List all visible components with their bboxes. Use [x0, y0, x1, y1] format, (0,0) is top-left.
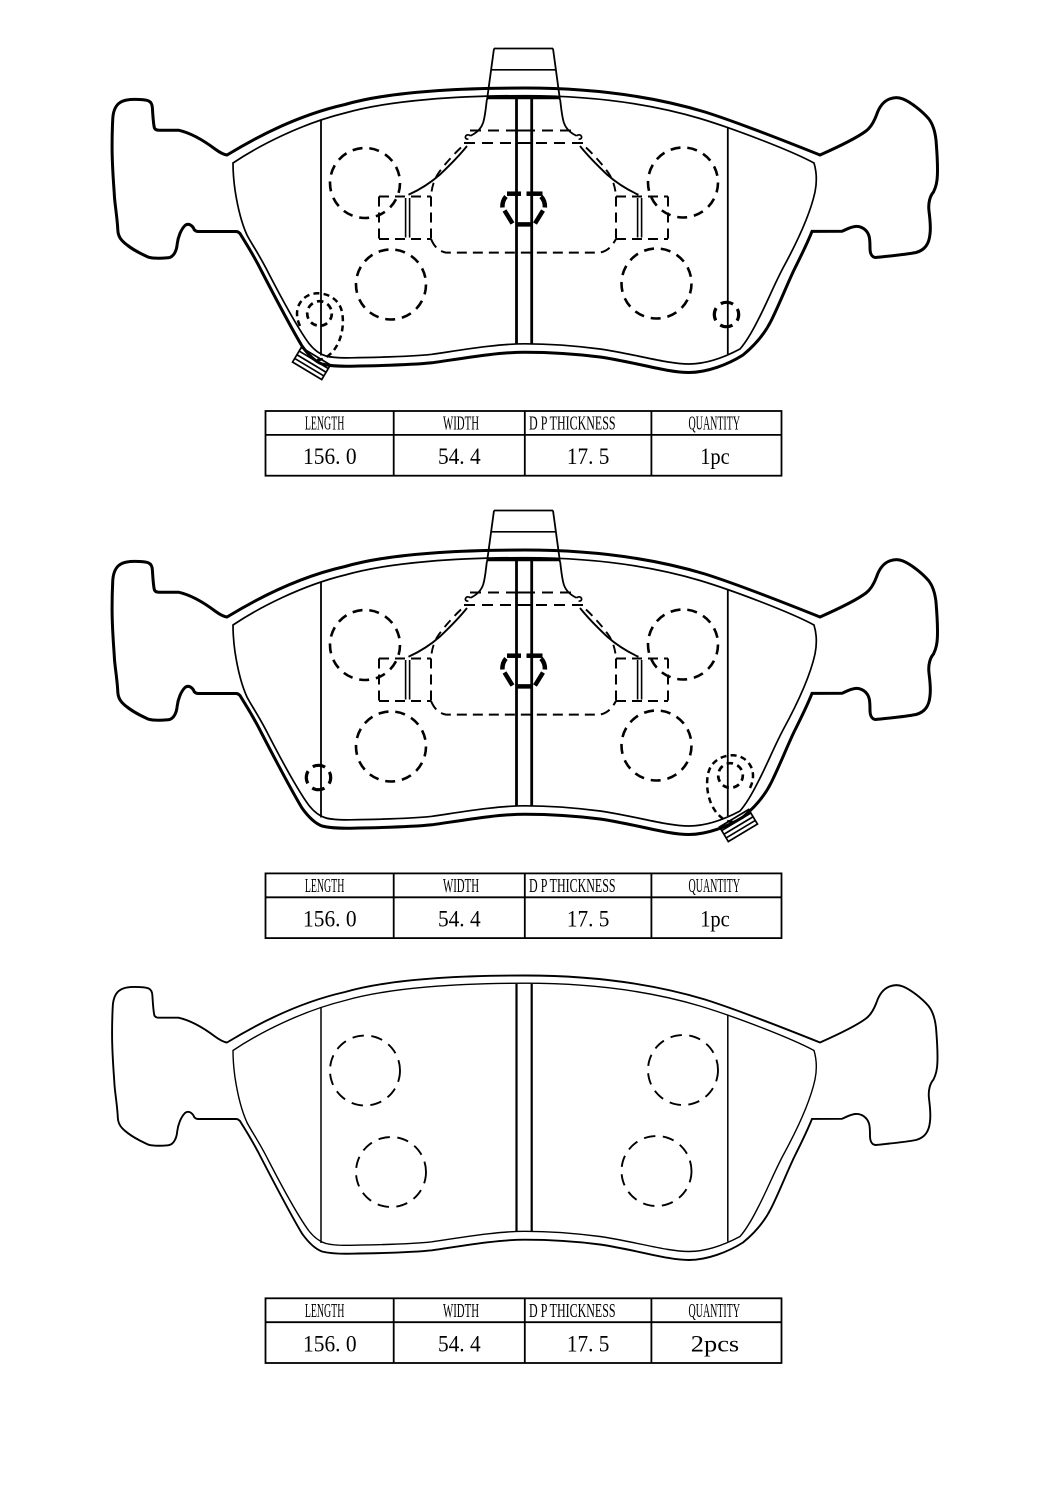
- svg-text:WIDTH: WIDTH: [443, 1301, 479, 1322]
- svg-text:17. 5: 17. 5: [567, 1332, 610, 1357]
- svg-text:54. 4: 54. 4: [438, 444, 481, 469]
- svg-text:156. 0: 156. 0: [303, 1332, 357, 1357]
- svg-text:LENGTH: LENGTH: [305, 876, 345, 897]
- svg-text:QUANTITY: QUANTITY: [689, 1301, 741, 1322]
- svg-text:QUANTITY: QUANTITY: [689, 876, 741, 897]
- svg-text:1pc: 1pc: [700, 907, 730, 932]
- svg-text:54. 4: 54. 4: [438, 907, 481, 932]
- svg-text:LENGTH: LENGTH: [305, 1301, 345, 1322]
- svg-text:2pcs: 2pcs: [691, 1332, 739, 1357]
- svg-text:D P THICKNESS: D P THICKNESS: [529, 1301, 616, 1322]
- svg-text:17. 5: 17. 5: [567, 907, 610, 932]
- svg-text:QUANTITY: QUANTITY: [689, 414, 741, 435]
- svg-text:D P THICKNESS: D P THICKNESS: [529, 414, 616, 435]
- svg-text:156. 0: 156. 0: [303, 444, 357, 469]
- svg-text:LENGTH: LENGTH: [305, 414, 345, 435]
- svg-text:WIDTH: WIDTH: [443, 414, 479, 435]
- svg-text:54. 4: 54. 4: [438, 1332, 481, 1357]
- svg-text:1pc: 1pc: [700, 444, 730, 469]
- svg-text:WIDTH: WIDTH: [443, 876, 479, 897]
- svg-text:D P THICKNESS: D P THICKNESS: [529, 876, 616, 897]
- svg-text:156. 0: 156. 0: [303, 907, 357, 932]
- svg-text:17. 5: 17. 5: [567, 444, 610, 469]
